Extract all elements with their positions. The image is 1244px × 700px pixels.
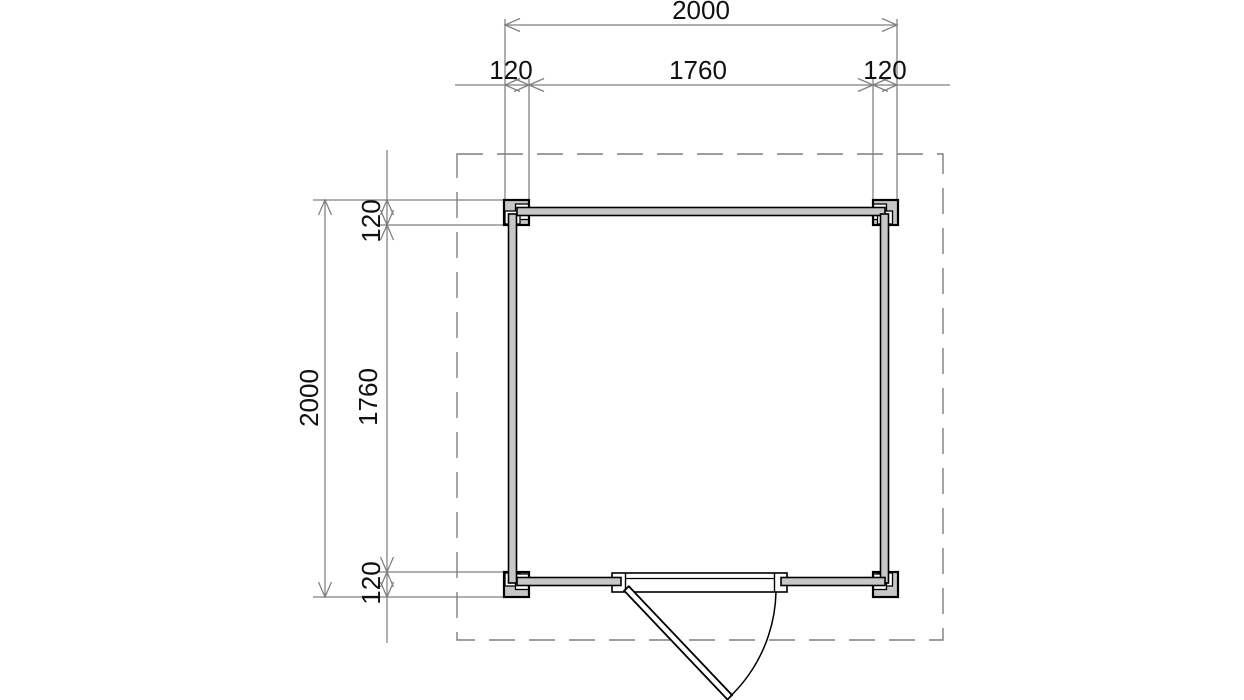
dim-top-left-offset: 120 xyxy=(489,57,532,83)
dim-left-overall: 2000 xyxy=(296,369,322,427)
dim-left-middle: 1760 xyxy=(355,368,381,426)
door-leaf xyxy=(624,586,732,699)
wall-left xyxy=(509,214,517,583)
dim-top-middle: 1760 xyxy=(669,57,727,83)
dim-top-overall: 2000 xyxy=(672,0,730,23)
roof-outline xyxy=(457,154,943,640)
dim-left-top-offset: 120 xyxy=(358,199,384,242)
dim-top-right-offset: 120 xyxy=(863,57,906,83)
dimension-arrowheads xyxy=(319,19,898,598)
dim-left-bottom-offset: 120 xyxy=(358,561,384,604)
door-swing-arc xyxy=(730,592,776,697)
wall-top xyxy=(517,208,885,216)
extension-lines xyxy=(313,19,897,597)
wall-bottom-left xyxy=(517,578,621,586)
floor-plan-canvas xyxy=(0,0,1244,700)
dimension-lines xyxy=(325,25,950,643)
door-frame xyxy=(612,573,787,592)
floor-plan-drawing: 2000 120 1760 120 2000 120 1760 120 xyxy=(0,0,1244,700)
walls xyxy=(509,208,889,586)
wall-bottom-right xyxy=(781,578,885,586)
wall-right xyxy=(881,214,889,583)
